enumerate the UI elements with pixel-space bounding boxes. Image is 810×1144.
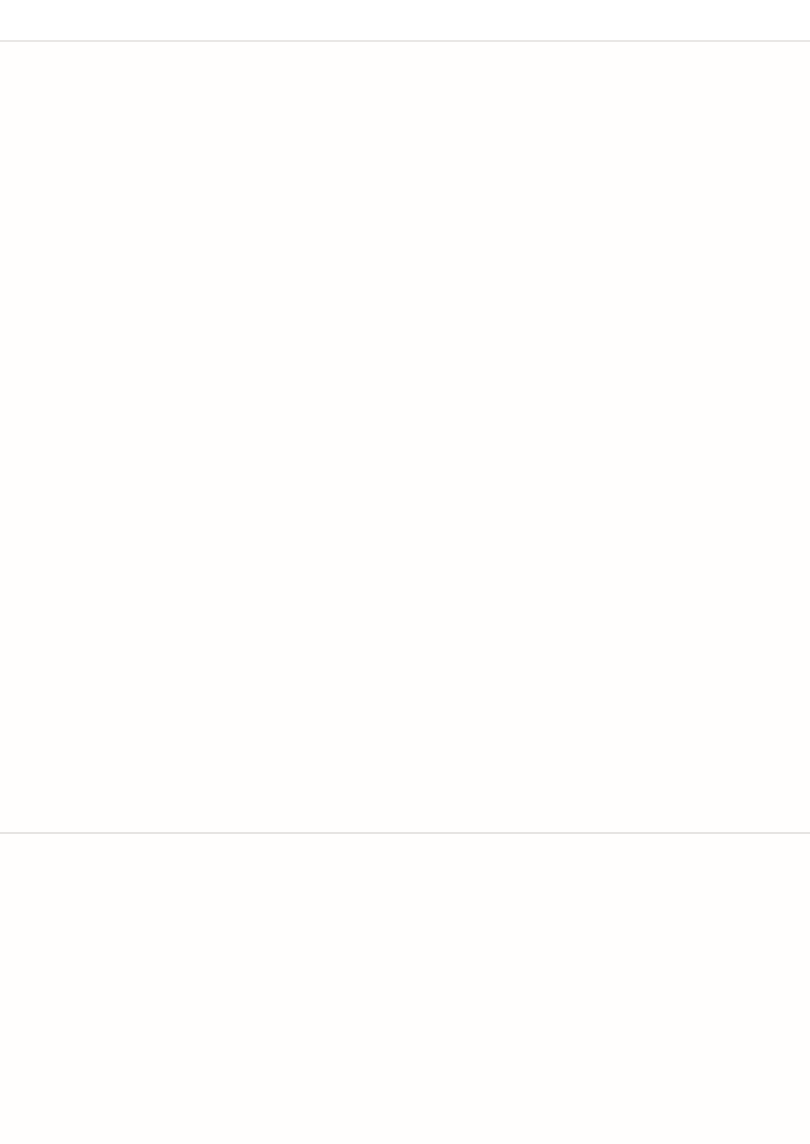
puzzle-page [0, 0, 810, 1144]
domino-tray [0, 0, 810, 1144]
